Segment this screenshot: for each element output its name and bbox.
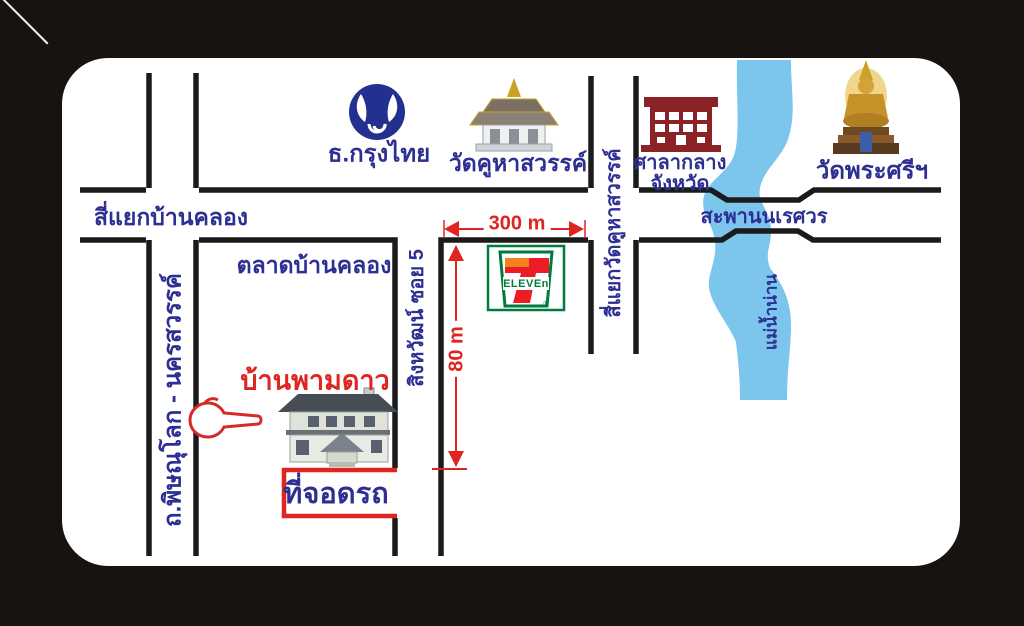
city-hall-label: ศาลากลาง จังหวัด (634, 153, 727, 195)
soi-singhawat-label: สิงหวัฒน์ ซอย 5 (400, 249, 432, 387)
map-card-stage: ELEVEn ® ธ.กรุงไทย วัดคูหาสวรรค์ (0, 0, 1024, 626)
house-name-label: บ้านพามดาว (240, 359, 389, 402)
seven-eleven-wordmark: ELEVEn (503, 278, 549, 290)
city-hall-label-line2: จังหวัด (634, 174, 727, 195)
hand-pointer-icon (190, 399, 261, 437)
government-building-icon (641, 97, 721, 152)
market-label: ตลาดบ้านคลอง (237, 248, 392, 284)
7-eleven-logo: ELEVEn ® (488, 246, 564, 310)
thai-temple-icon (470, 78, 558, 151)
road-main-upper (80, 190, 941, 200)
temple-phrasi-label: วัดพระศรีฯ (816, 151, 928, 190)
intersection-banklong-label: สี่แยกบ้านคลอง (94, 200, 248, 236)
main-road-label: ถ.พิษณุโลก - นครสวรรค์ (153, 273, 192, 527)
buddha-statue-icon (833, 60, 899, 154)
city-hall-label-line1: ศาลากลาง (634, 153, 727, 174)
parking-label: ที่จอดรถ (283, 470, 389, 516)
intersection-watkhuha-label: สี่แยกวัดคูหาสวรรค์ (597, 148, 629, 317)
distance-300m-label: 300 m (484, 213, 551, 236)
distance-80m-label: 80 m (446, 321, 469, 377)
bank-label: ธ.กรุงไทย (328, 134, 430, 173)
seven-eleven-registered-mark: ® (543, 300, 549, 308)
river-nan-label: แม่น้ำน่าน (758, 274, 785, 350)
bridge-naresuan-label: สะพานนเรศวร (701, 200, 828, 232)
krungthai-logo-icon (349, 84, 405, 140)
temple-khuha-label: วัดคูหาสวรรค์ (449, 146, 587, 182)
